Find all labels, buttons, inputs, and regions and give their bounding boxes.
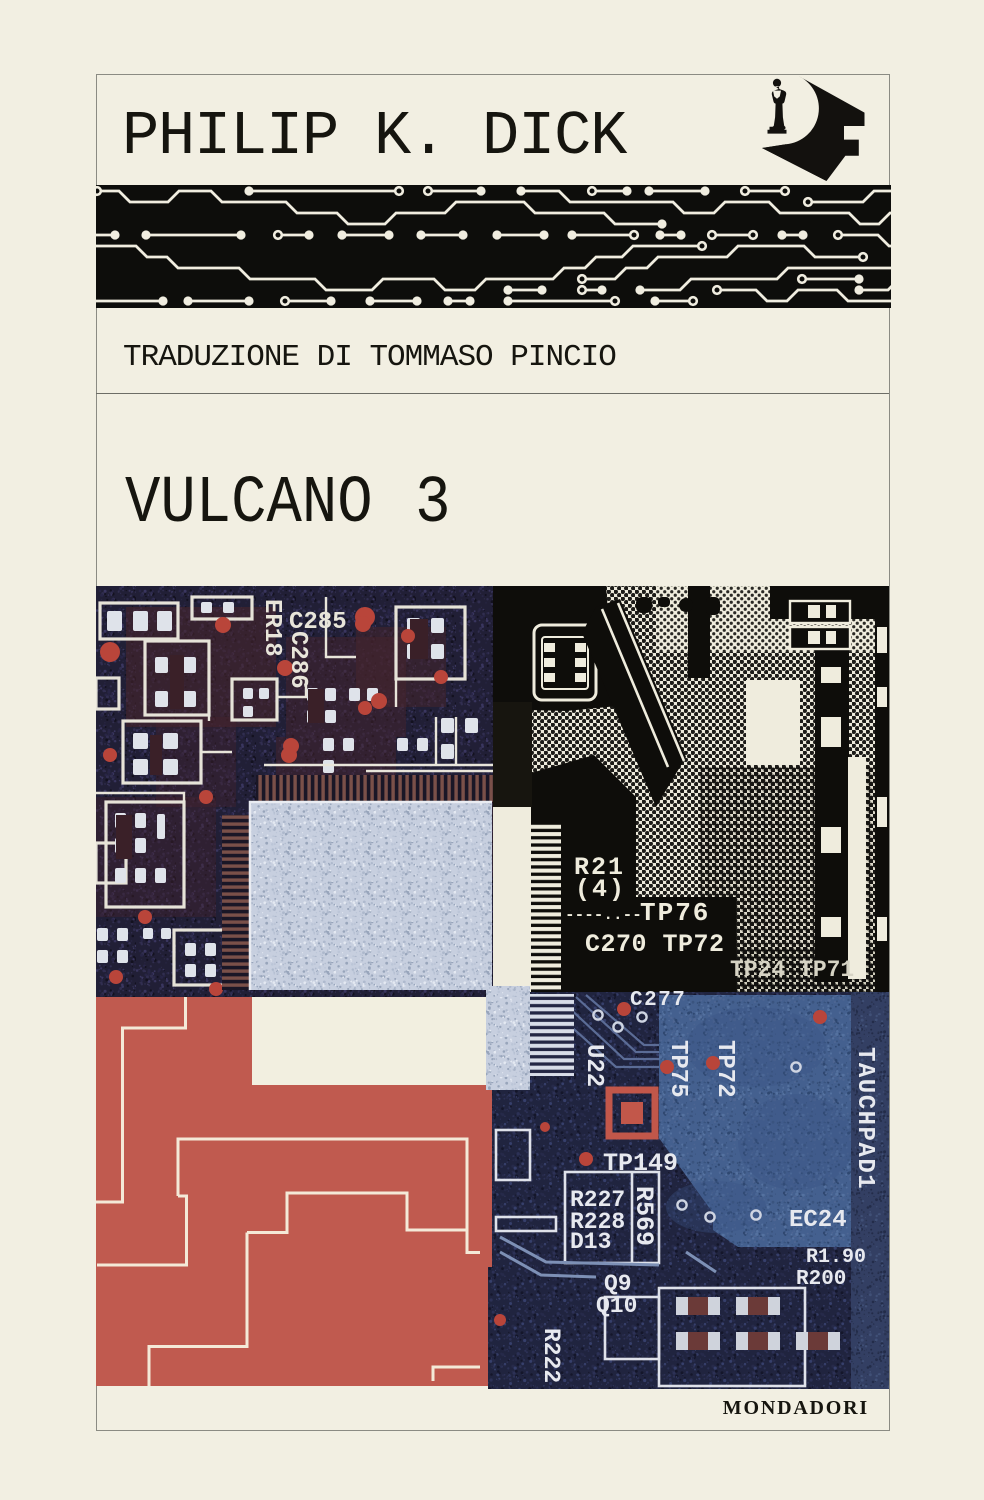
svg-text:(4): (4) [575,875,626,904]
svg-text:R569: R569 [629,1186,658,1246]
svg-text:ER18: ER18 [258,599,285,657]
svg-text:D13: D13 [570,1229,611,1255]
svg-text:EC24: EC24 [789,1207,847,1234]
svg-text:TAUCHPAD1: TAUCHPAD1 [851,1047,878,1190]
svg-text:----..--: ----..-- [565,906,642,924]
svg-text:TP149: TP149 [603,1149,678,1178]
svg-text:Q10: Q10 [596,1293,637,1319]
svg-text:TP72: TP72 [711,1040,738,1098]
svg-text:R200: R200 [796,1268,846,1291]
svg-text:R222: R222 [538,1328,564,1383]
svg-text:TP75: TP75 [664,1040,691,1098]
svg-text:C277: C277 [630,989,686,1012]
svg-text:U22: U22 [580,1044,607,1087]
svg-text:TP24 TP71: TP24 TP71 [730,957,854,983]
svg-text:R1.90: R1.90 [806,1246,866,1269]
svg-text:C270 TP72: C270 TP72 [585,930,725,959]
svg-text:TP76: TP76 [640,898,710,928]
